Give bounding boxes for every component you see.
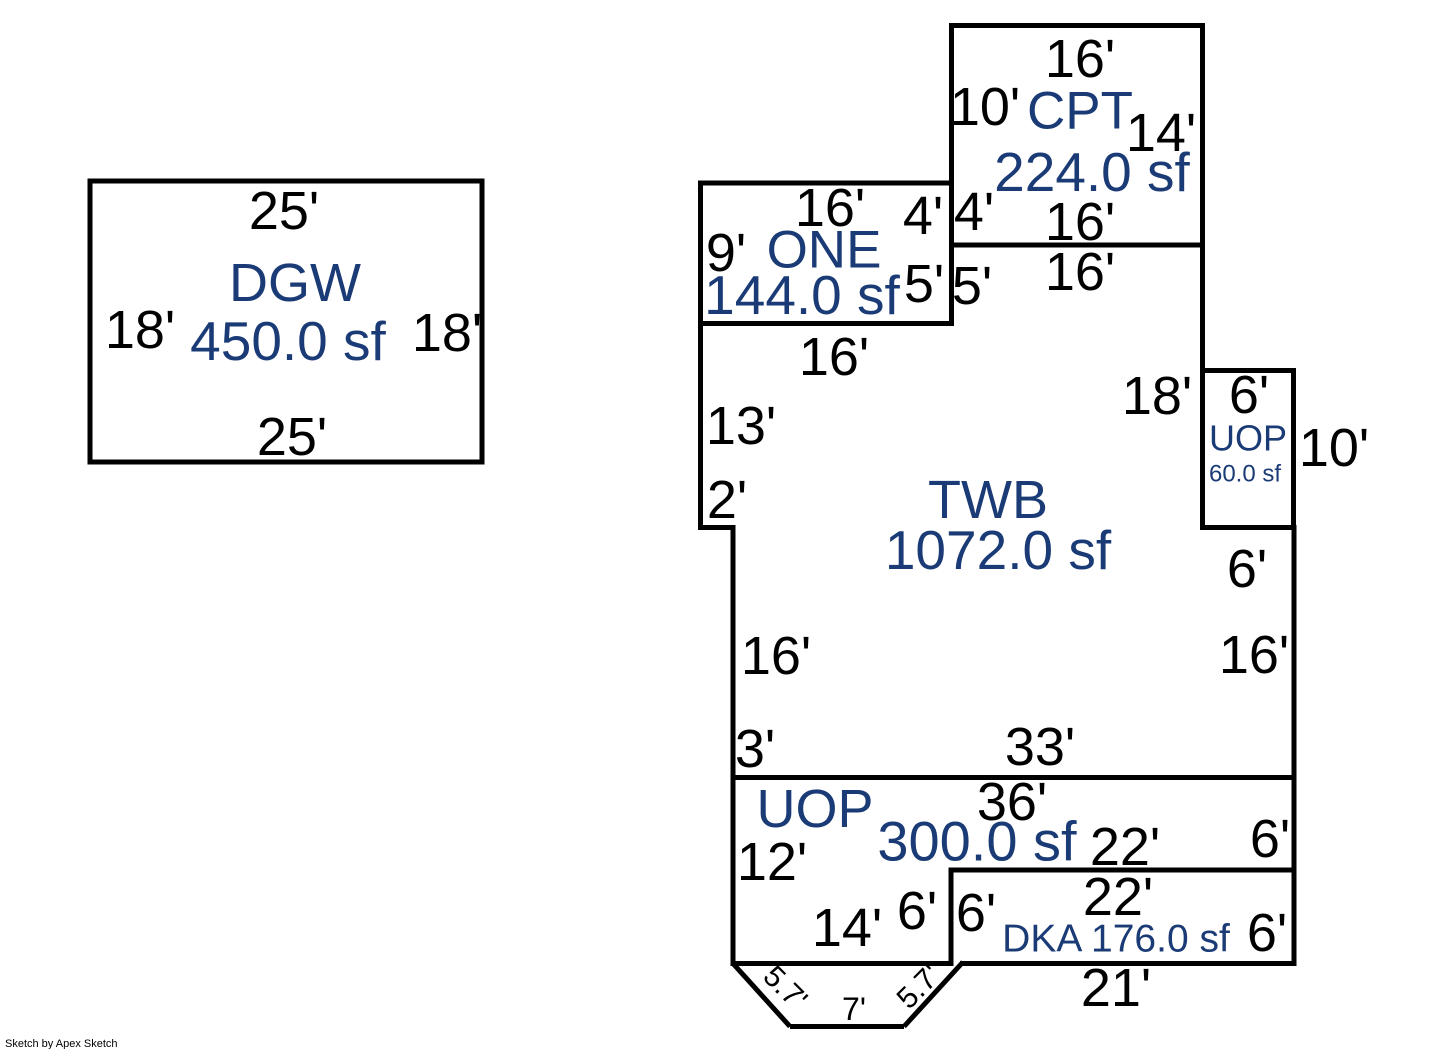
- svg-text:16': 16': [1045, 29, 1115, 89]
- svg-text:Sketch by Apex Sketch: Sketch by Apex Sketch: [5, 1038, 118, 1049]
- svg-text:6': 6': [1227, 539, 1267, 599]
- svg-text:16': 16': [799, 327, 869, 387]
- svg-text:7': 7': [842, 991, 866, 1027]
- svg-text:12': 12': [737, 832, 807, 892]
- svg-text:13': 13': [706, 396, 776, 456]
- svg-text:2': 2': [707, 470, 747, 530]
- svg-text:450.0 sf: 450.0 sf: [190, 310, 386, 372]
- svg-text:144.0 sf: 144.0 sf: [704, 264, 900, 326]
- svg-text:6': 6': [1250, 809, 1290, 869]
- svg-text:5': 5': [904, 254, 944, 314]
- svg-text:16': 16': [1219, 625, 1289, 685]
- svg-text:DGW: DGW: [229, 253, 361, 313]
- svg-text:10': 10': [1299, 418, 1369, 478]
- svg-text:5': 5': [952, 256, 992, 316]
- svg-text:1072.0 sf: 1072.0 sf: [885, 519, 1112, 581]
- svg-text:10': 10': [950, 77, 1020, 137]
- svg-text:33': 33': [1005, 717, 1075, 777]
- svg-text:300.0 sf: 300.0 sf: [877, 810, 1077, 873]
- svg-text:60.0 sf: 60.0 sf: [1209, 461, 1281, 488]
- svg-text:18': 18': [1122, 366, 1192, 426]
- svg-text:4': 4': [903, 186, 943, 246]
- svg-text:3': 3': [735, 719, 775, 779]
- svg-text:UOP: UOP: [1209, 418, 1287, 459]
- svg-text:224.0 sf: 224.0 sf: [994, 141, 1190, 203]
- svg-text:16': 16': [1045, 242, 1115, 302]
- svg-text:14': 14': [812, 898, 882, 958]
- svg-text:21': 21': [1081, 958, 1151, 1018]
- svg-text:DKA 176.0 sf: DKA 176.0 sf: [1002, 918, 1230, 961]
- svg-text:25': 25': [257, 407, 327, 467]
- svg-text:6': 6': [897, 881, 937, 941]
- svg-text:18': 18': [412, 303, 482, 363]
- svg-text:6': 6': [956, 883, 996, 943]
- svg-text:16': 16': [741, 626, 811, 686]
- svg-text:6': 6': [1247, 903, 1287, 963]
- svg-text:CPT: CPT: [1027, 82, 1133, 141]
- svg-text:18': 18': [105, 300, 175, 360]
- svg-text:25': 25': [249, 181, 319, 241]
- svg-text:4': 4': [954, 182, 994, 242]
- svg-text:6': 6': [1229, 365, 1269, 425]
- svg-text:UOP: UOP: [756, 779, 873, 839]
